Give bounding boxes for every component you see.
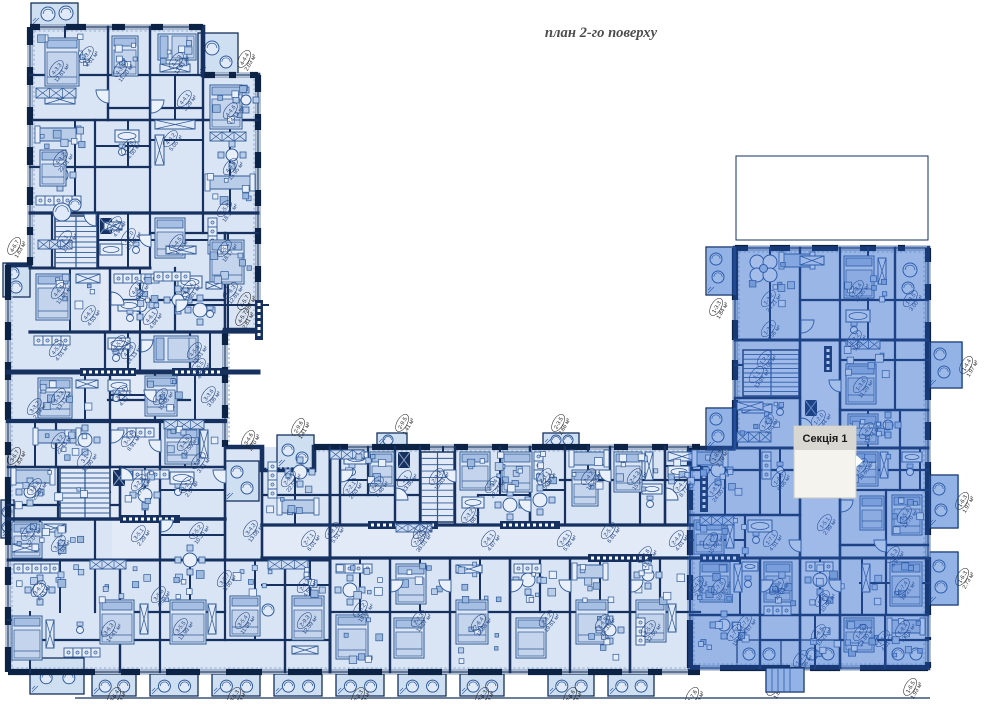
svg-text:план 2-го поверху: план 2-го поверху <box>545 25 658 41</box>
svg-text:Секція 1: Секція 1 <box>803 433 848 445</box>
